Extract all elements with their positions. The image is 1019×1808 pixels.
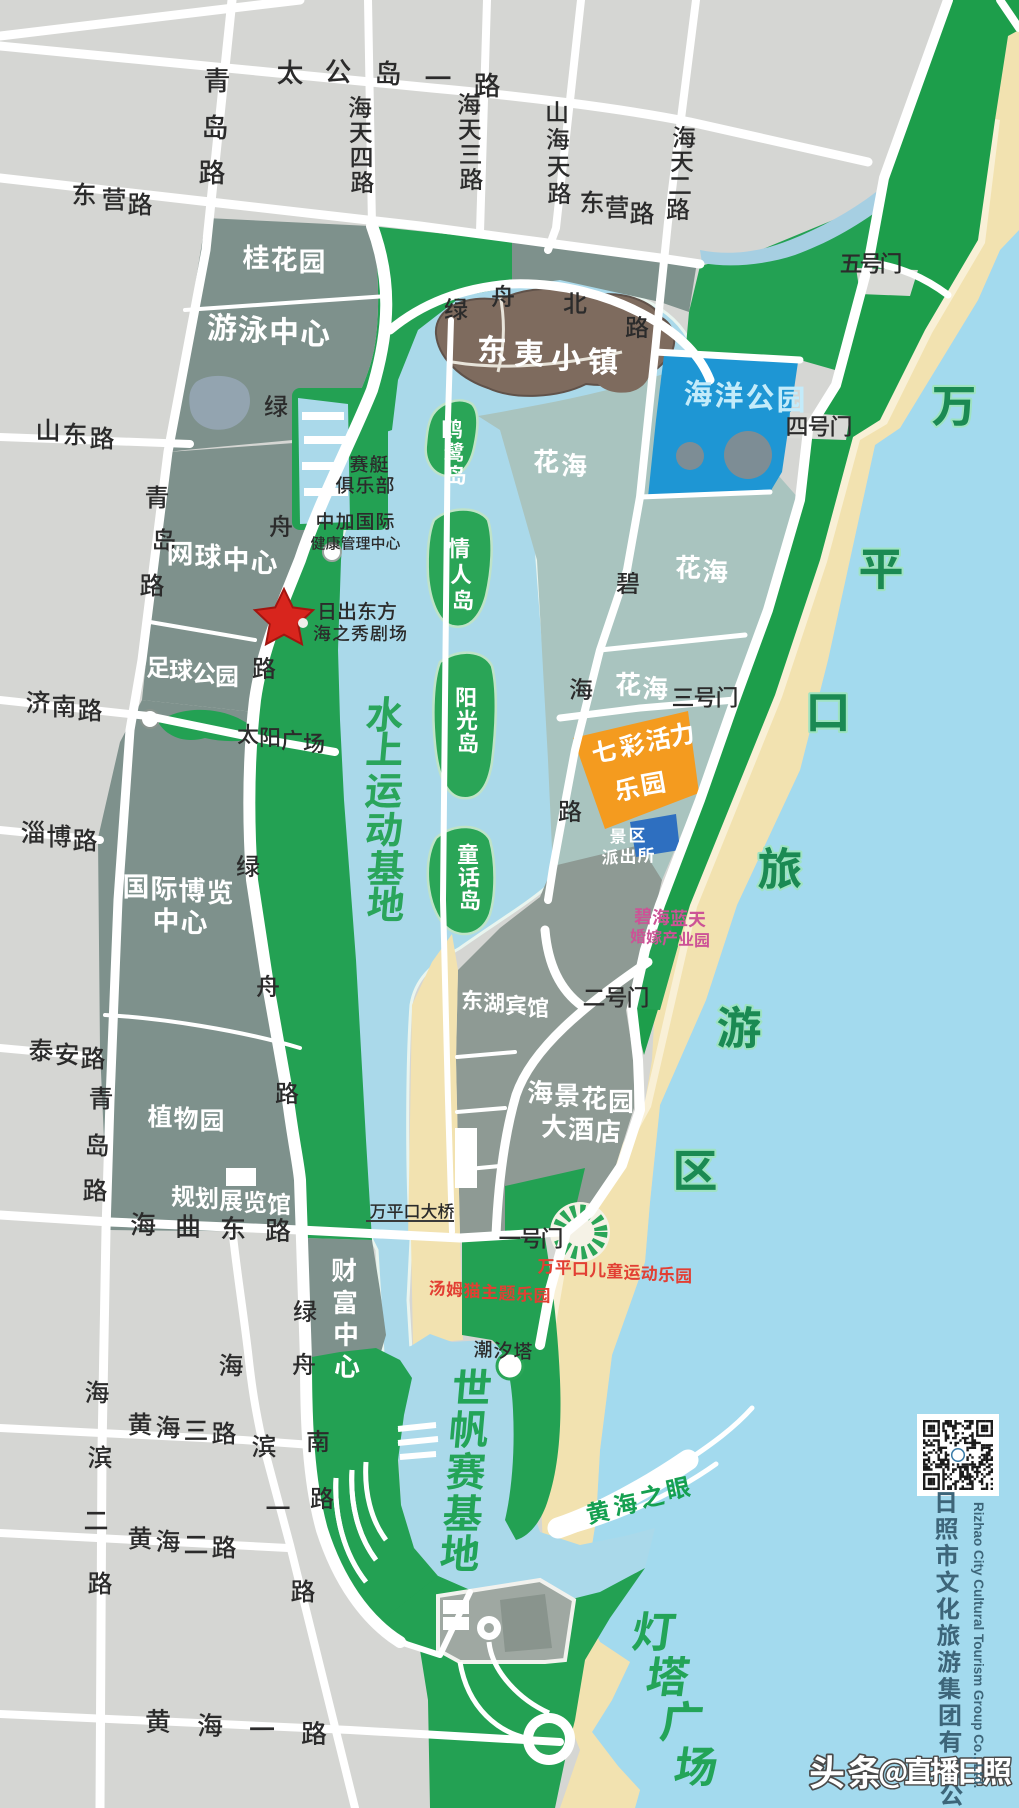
- svg-text:Rizhao City Cultural Tourism G: Rizhao City Cultural Tourism Group Co., …: [971, 1502, 986, 1788]
